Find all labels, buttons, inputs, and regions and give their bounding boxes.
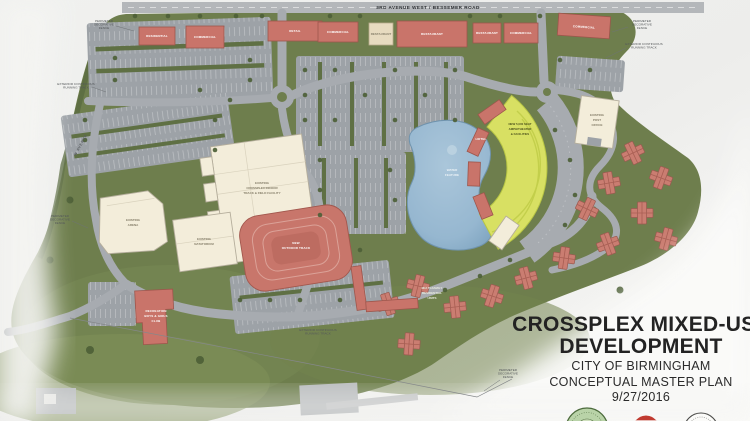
bush: [228, 98, 233, 103]
bush: [303, 68, 308, 73]
note-text: FENCE: [55, 221, 66, 225]
note-text: FENCE: [637, 26, 648, 30]
label-crossplex-line1: EXISTING: [255, 181, 270, 185]
label-crossplex-line3: TRACK & FIELD FACILITY: [243, 191, 280, 195]
label-post-office-line2: POST: [593, 118, 601, 122]
label-new-track-line2: OUTDOOR TRACK: [282, 246, 311, 250]
note-text: FENCE: [503, 375, 514, 379]
project-title-line2: DEVELOPMENT: [559, 335, 722, 358]
note-text: RUNNING TRACK: [631, 46, 658, 50]
note-text: RUNNING TRACK: [63, 86, 90, 90]
label-residential-line2: RESIDENTIAL: [422, 291, 442, 295]
fountain: [447, 145, 457, 155]
roundabout-west-island: [277, 92, 287, 102]
bush: [333, 118, 338, 123]
label-residential-line3: UNITS: [428, 296, 437, 300]
label-residential-line1: MULTI-FAMILY: [422, 286, 443, 290]
bush: [393, 118, 398, 123]
bush: [338, 298, 343, 303]
label-new-track-line1: NEW: [292, 241, 299, 245]
project-date: 9/27/2016: [612, 390, 670, 404]
label-water-feature-line2: FEATURE: [445, 173, 459, 177]
bush: [453, 118, 458, 123]
bush: [213, 148, 218, 153]
drive-northwest: [88, 98, 271, 102]
bush: [133, 14, 138, 19]
bush: [333, 68, 338, 73]
label-arena-line1: EXISTING: [126, 218, 141, 222]
site-plan-screenshot: WATER FEATURE HOTEL NEW 5,000 SEAT AMPHI…: [0, 0, 750, 421]
bush: [393, 68, 398, 73]
label-b3: RETAIL: [289, 29, 301, 33]
label-b7: RESTAURANT: [476, 31, 498, 35]
bush: [588, 68, 593, 73]
building-post-office: [575, 96, 619, 149]
bush: [553, 128, 558, 133]
label-b8: COMMERCIAL: [510, 31, 532, 35]
bush: [508, 258, 513, 263]
bush: [248, 58, 253, 63]
bush: [113, 78, 118, 83]
new-track: NEW OUTDOOR TRACK: [237, 202, 356, 294]
label-arena-line2: ARENA: [128, 223, 140, 227]
bush: [358, 248, 363, 253]
project-subtitle1: CITY OF BIRMINGHAM: [571, 359, 710, 373]
bush: [268, 298, 273, 303]
project-title-line1: CROSSPLEX MIXED-USE: [512, 313, 750, 336]
bush: [248, 78, 253, 83]
bush: [234, 14, 239, 19]
bush: [478, 274, 483, 279]
bush: [388, 168, 393, 173]
bush: [568, 158, 573, 163]
bush: [468, 14, 473, 19]
bush: [196, 356, 204, 364]
bush: [358, 14, 363, 19]
label-water-feature-line1: WATER: [447, 168, 458, 172]
bush: [303, 93, 308, 98]
label-hotel: HOTEL: [476, 137, 487, 141]
label-rec-club-line3: CLUB: [152, 319, 162, 323]
bush: [260, 14, 265, 19]
bush: [113, 56, 118, 61]
bush: [198, 88, 203, 93]
bush: [498, 14, 503, 19]
bush: [443, 288, 448, 293]
bush: [363, 93, 368, 98]
roundabout-east-island: [543, 88, 551, 96]
bush: [318, 158, 323, 163]
bush: [238, 298, 243, 303]
label-rec-club-line1: RECREATION: [145, 309, 166, 313]
bush: [213, 118, 218, 123]
label-b6: RESTAURANT: [421, 32, 443, 36]
bush: [303, 118, 308, 123]
bush: [617, 287, 624, 294]
bush: [198, 14, 203, 19]
label-b5: RESTAURANT: [371, 32, 392, 36]
note-text: FENCE: [99, 26, 110, 30]
label-amphitheater-line3: & FACILITIES: [511, 132, 530, 136]
bush: [538, 14, 543, 19]
bush: [423, 93, 428, 98]
label-b4: COMMERCIAL: [327, 30, 349, 34]
note-text: RUNNING TRACK: [305, 332, 332, 336]
bush: [563, 223, 568, 228]
label-rec-club-line2: BOYS & GIRLS: [144, 314, 167, 318]
master-plan-svg: WATER FEATURE HOTEL NEW 5,000 SEAT AMPHI…: [0, 0, 750, 421]
label-post-office-line1: EXISTING: [590, 113, 605, 117]
parking-lot-postoffice: [555, 56, 625, 93]
label-natatorium-line2: NATATORIUM: [194, 242, 214, 246]
label-top-road: 3RD AVENUE WEST / BESSEMER ROAD: [376, 5, 480, 10]
label-amphitheater-line2: AMPHITHEATER: [509, 127, 533, 131]
bush: [328, 14, 333, 19]
label-natatorium-line1: EXISTING: [197, 237, 212, 241]
label-post-office-line3: OFFICE: [592, 123, 603, 127]
bush: [573, 193, 578, 198]
label-b2: COMMERCIAL: [194, 35, 216, 39]
bush: [558, 58, 563, 63]
entrance-road-east: [541, 13, 544, 81]
bush: [67, 197, 74, 204]
bush: [318, 188, 323, 193]
bush: [393, 198, 398, 203]
label-b1: RESIDENTIAL: [146, 34, 168, 38]
project-subtitle2: CONCEPTUAL MASTER PLAN: [549, 375, 732, 389]
bush: [83, 118, 88, 123]
label-crossplex-line2: CROSSPLEX INDOOR: [246, 186, 278, 190]
bush: [166, 14, 171, 19]
bush: [318, 213, 323, 218]
label-amphitheater-line1: NEW 5,000 SEAT: [508, 122, 531, 126]
bush: [298, 298, 303, 303]
bush: [86, 346, 94, 354]
building-arena: [96, 190, 168, 255]
bush: [453, 68, 458, 73]
